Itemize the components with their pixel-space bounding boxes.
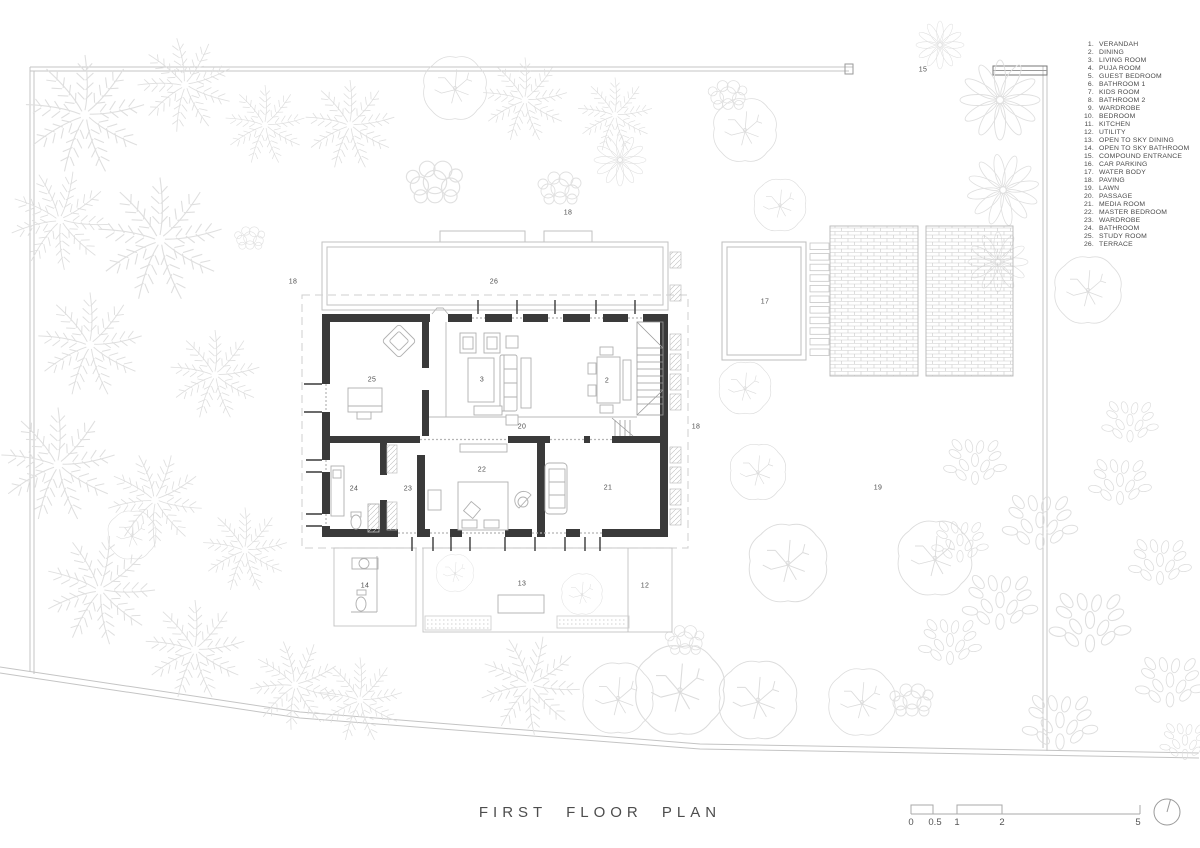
- legend-item-label: PASSAGE: [1099, 193, 1132, 201]
- plan-room-label: 14: [361, 583, 369, 590]
- legend-item-number: 1.: [1081, 41, 1099, 49]
- legend-item: 23.WARDROBE: [1081, 217, 1199, 225]
- plan-room-label: 12: [641, 583, 649, 590]
- legend-item: 22.MASTER BEDROOM: [1081, 209, 1199, 217]
- legend-item-number: 5.: [1081, 73, 1099, 81]
- legend-item-label: OPEN TO SKY BATHROOM: [1099, 145, 1189, 153]
- legend-item: 4.PUJA ROOM: [1081, 65, 1199, 73]
- site-plan-drawing: [0, 0, 1200, 848]
- legend-item-number: 3.: [1081, 57, 1099, 65]
- legend-item: 9.WARDROBE: [1081, 105, 1199, 113]
- legend-item: 6.BATHROOM 1: [1081, 81, 1199, 89]
- legend-item-label: PUJA ROOM: [1099, 65, 1141, 73]
- legend-item-label: BATHROOM 1: [1099, 81, 1145, 89]
- legend-item-label: WARDROBE: [1099, 217, 1140, 225]
- plan-room-label: 18: [289, 279, 297, 286]
- legend-item: 26.TERRACE: [1081, 241, 1199, 249]
- legend-item-label: LAWN: [1099, 185, 1119, 193]
- legend-item-label: WARDROBE: [1099, 105, 1140, 113]
- legend-item: 24.BATHROOM: [1081, 225, 1199, 233]
- legend-item-label: MEDIA ROOM: [1099, 201, 1145, 209]
- legend-item-number: 19.: [1081, 185, 1099, 193]
- floor-plan-sheet: 1.VERANDAH2.DINING3.LIVING ROOM4.PUJA RO…: [0, 0, 1200, 848]
- legend-item-label: OPEN TO SKY DINING: [1099, 137, 1174, 145]
- garden-steps: [810, 243, 829, 356]
- legend-item: 2.DINING: [1081, 49, 1199, 57]
- legend: 1.VERANDAH2.DINING3.LIVING ROOM4.PUJA RO…: [1081, 41, 1199, 249]
- legend-item-number: 12.: [1081, 129, 1099, 137]
- legend-item-number: 17.: [1081, 169, 1099, 177]
- legend-item-label: VERANDAH: [1099, 41, 1138, 49]
- legend-item-label: BATHROOM 2: [1099, 97, 1145, 105]
- legend-item: 25.STUDY ROOM: [1081, 233, 1199, 241]
- plan-room-label: 22: [478, 467, 486, 474]
- legend-item-label: UTILITY: [1099, 129, 1126, 137]
- legend-item-number: 4.: [1081, 65, 1099, 73]
- legend-item-number: 7.: [1081, 89, 1099, 97]
- legend-item-number: 21.: [1081, 201, 1099, 209]
- legend-item: 13.OPEN TO SKY DINING: [1081, 137, 1199, 145]
- plan-room-label: 24: [350, 486, 358, 493]
- plan-room-label: 18: [692, 424, 700, 431]
- plan-room-label: 2: [605, 378, 609, 385]
- plan-room-label: 3: [480, 377, 484, 384]
- legend-item: 16.CAR PARKING: [1081, 161, 1199, 169]
- legend-item-number: 22.: [1081, 209, 1099, 217]
- legend-item-label: COMPOUND ENTRANCE: [1099, 153, 1182, 161]
- legend-item: 12.UTILITY: [1081, 129, 1199, 137]
- legend-item-label: BEDROOM: [1099, 113, 1136, 121]
- car-parking-paving: [830, 226, 1013, 376]
- site-boundary: [0, 64, 1199, 758]
- legend-item-number: 11.: [1081, 121, 1099, 129]
- plan-room-label: 17: [761, 299, 769, 306]
- legend-item: 19.LAWN: [1081, 185, 1199, 193]
- legend-item-number: 6.: [1081, 81, 1099, 89]
- plan-room-label: 18: [564, 210, 572, 217]
- legend-item: 3.LIVING ROOM: [1081, 57, 1199, 65]
- legend-item-label: PAVING: [1099, 177, 1125, 185]
- legend-item-label: DINING: [1099, 49, 1124, 57]
- plan-room-label: 26: [490, 279, 498, 286]
- plan-room-label: 19: [874, 485, 882, 492]
- plan-room-label: 23: [404, 486, 412, 493]
- legend-item-number: 14.: [1081, 145, 1099, 153]
- courtyards: [334, 548, 672, 632]
- legend-item-label: KIDS ROOM: [1099, 89, 1140, 97]
- legend-item-number: 15.: [1081, 153, 1099, 161]
- legend-item: 11.KITCHEN: [1081, 121, 1199, 129]
- legend-item-number: 8.: [1081, 97, 1099, 105]
- legend-item: 1.VERANDAH: [1081, 41, 1199, 49]
- legend-item-number: 18.: [1081, 177, 1099, 185]
- legend-item-number: 10.: [1081, 113, 1099, 121]
- legend-item: 10.BEDROOM: [1081, 113, 1199, 121]
- legend-item-label: GUEST BEDROOM: [1099, 73, 1162, 81]
- legend-item-number: 16.: [1081, 161, 1099, 169]
- legend-item: 14.OPEN TO SKY BATHROOM: [1081, 145, 1199, 153]
- legend-item: 17.WATER BODY: [1081, 169, 1199, 177]
- legend-item-label: TERRACE: [1099, 241, 1133, 249]
- legend-item: 20.PASSAGE: [1081, 193, 1199, 201]
- legend-item-label: STUDY ROOM: [1099, 233, 1147, 241]
- plan-room-label: 15: [919, 67, 927, 74]
- legend-item: 7.KIDS ROOM: [1081, 89, 1199, 97]
- plan-room-label: 21: [604, 485, 612, 492]
- plan-room-label: 25: [368, 377, 376, 384]
- legend-item-number: 20.: [1081, 193, 1099, 201]
- plan-room-label: 20: [518, 424, 526, 431]
- terrace-outline: [322, 231, 668, 310]
- legend-item-label: KITCHEN: [1099, 121, 1130, 129]
- legend-item-number: 2.: [1081, 49, 1099, 57]
- legend-item-label: CAR PARKING: [1099, 161, 1148, 169]
- legend-item-number: 26.: [1081, 241, 1099, 249]
- legend-item: 5.GUEST BEDROOM: [1081, 73, 1199, 81]
- plan-room-label: 13: [518, 581, 526, 588]
- legend-item-label: MASTER BEDROOM: [1099, 209, 1167, 217]
- legend-item: 8.BATHROOM 2: [1081, 97, 1199, 105]
- legend-item: 18.PAVING: [1081, 177, 1199, 185]
- legend-item: 21.MEDIA ROOM: [1081, 201, 1199, 209]
- furniture: [331, 324, 631, 532]
- legend-item: 15.COMPOUND ENTRANCE: [1081, 153, 1199, 161]
- legend-item-number: 13.: [1081, 137, 1099, 145]
- legend-item-label: WATER BODY: [1099, 169, 1146, 177]
- legend-item-label: BATHROOM: [1099, 225, 1139, 233]
- legend-item-number: 25.: [1081, 233, 1099, 241]
- legend-item-label: LIVING ROOM: [1099, 57, 1147, 65]
- drawing-title: FIRST FLOOR PLAN: [0, 804, 1200, 821]
- legend-item-number: 23.: [1081, 217, 1099, 225]
- legend-item-number: 24.: [1081, 225, 1099, 233]
- legend-item-number: 9.: [1081, 105, 1099, 113]
